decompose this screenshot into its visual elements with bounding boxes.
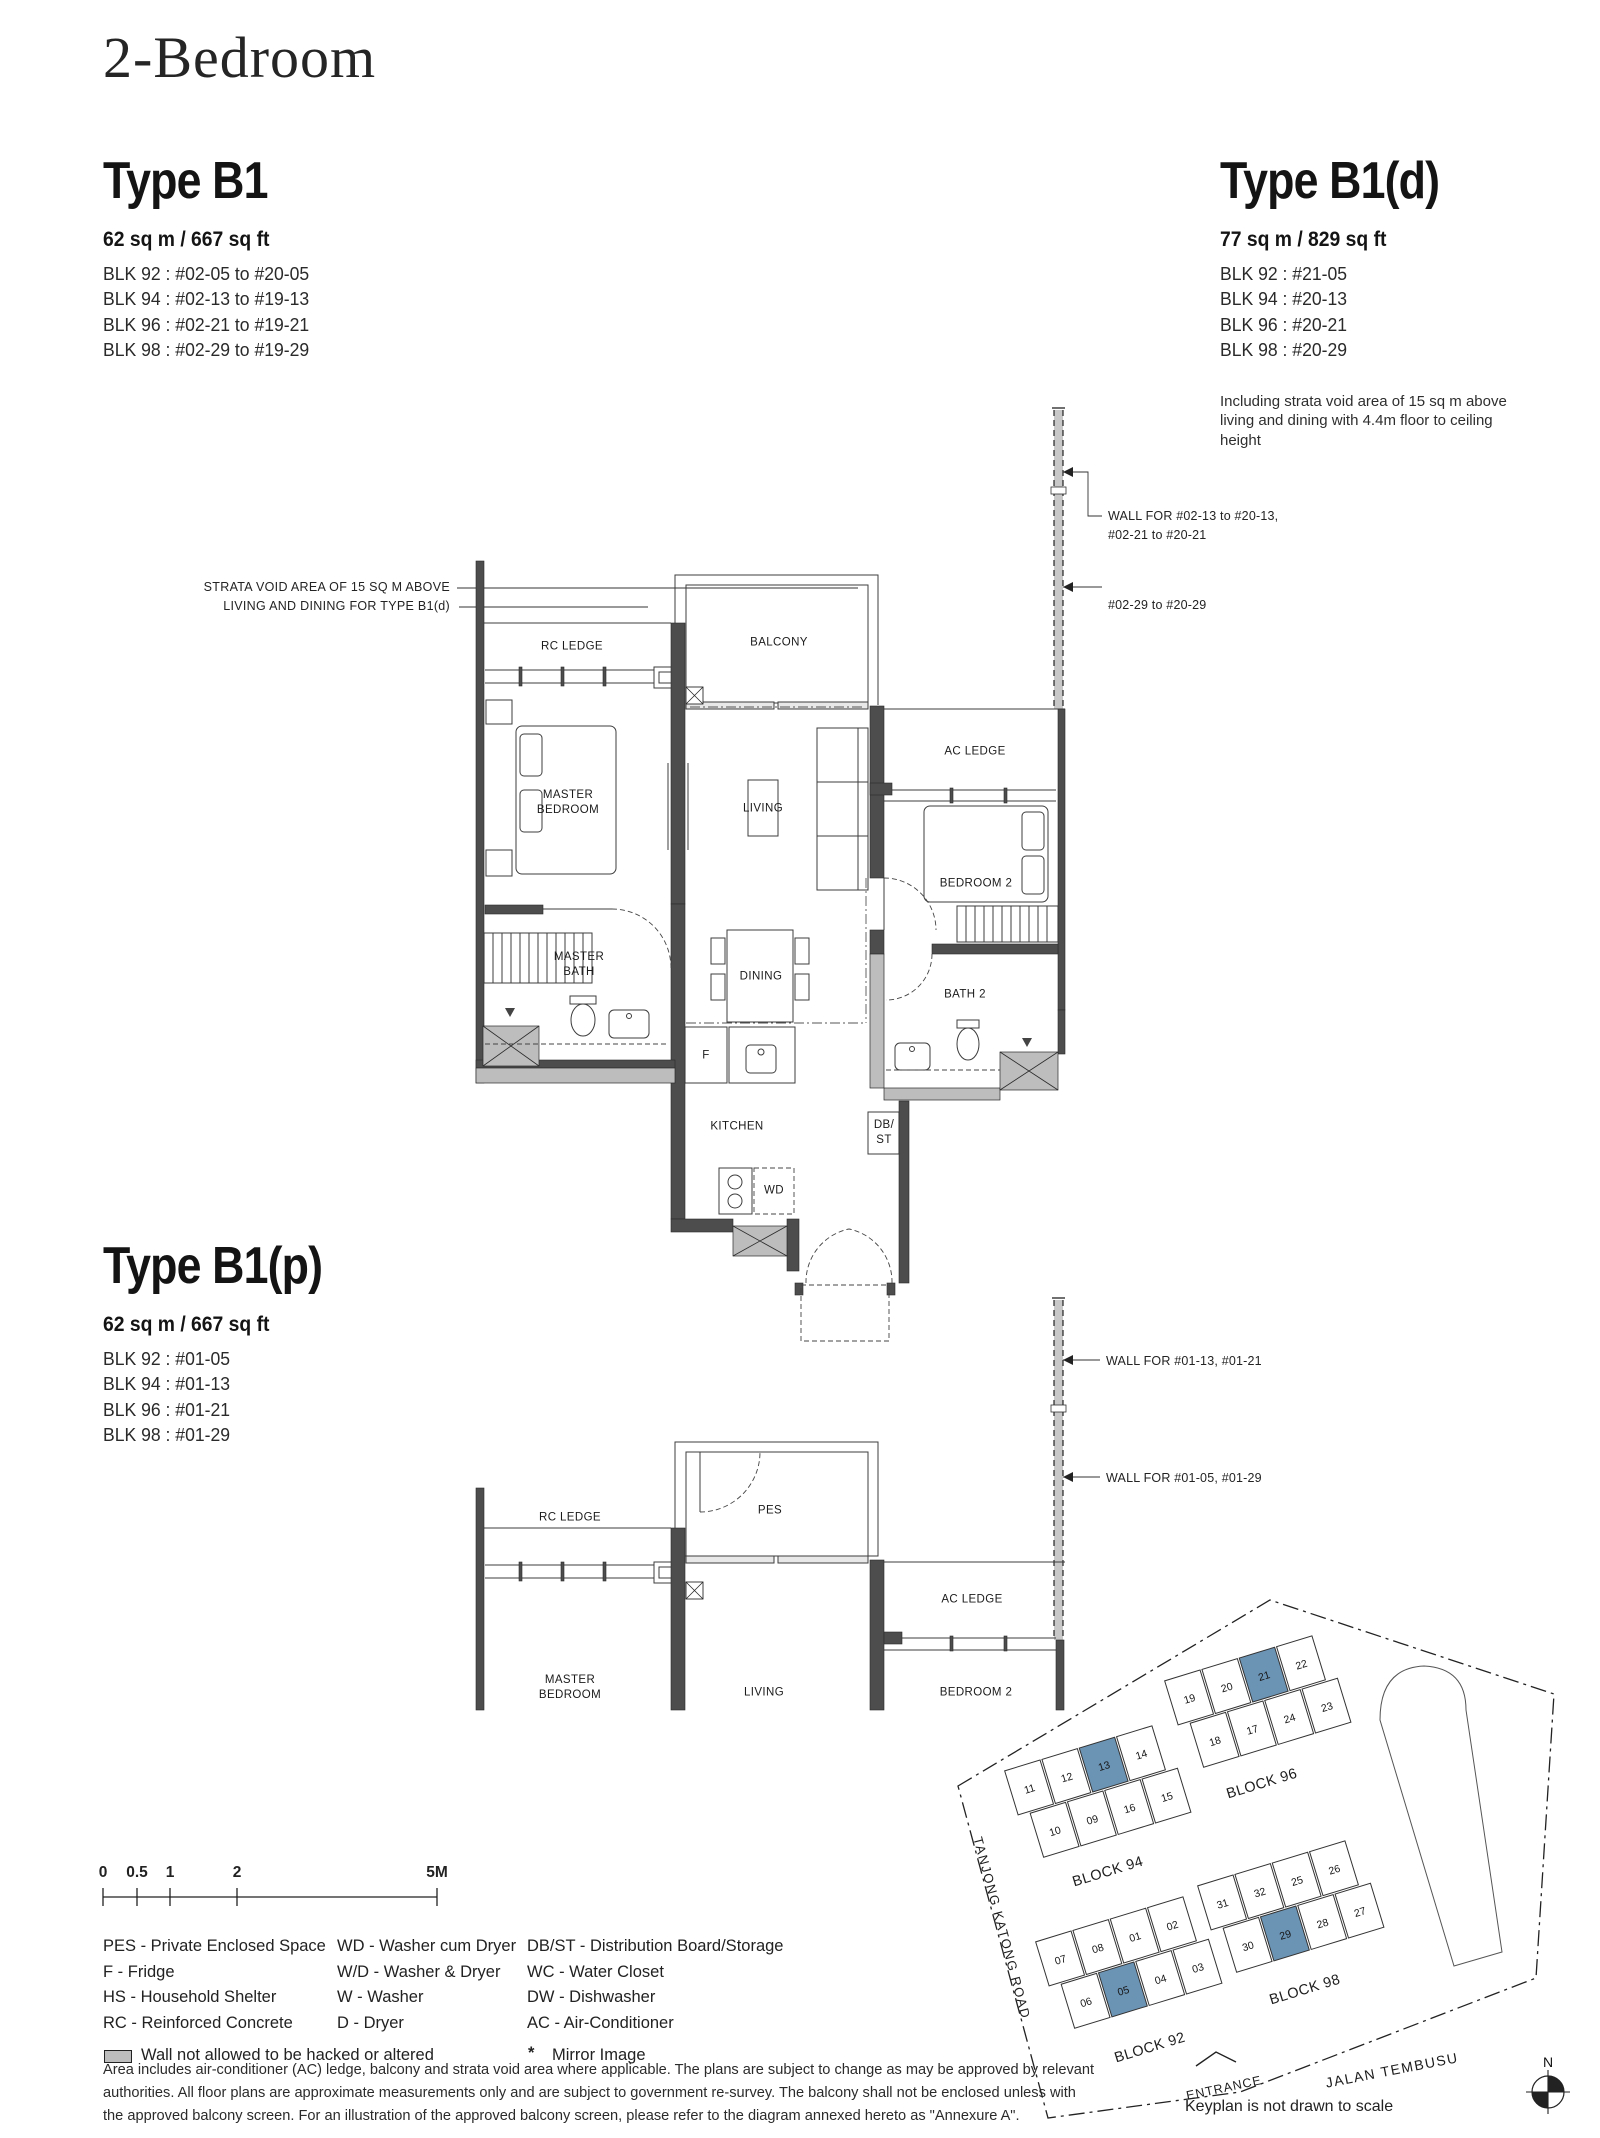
- keyplan-note: Keyplan is not drawn to scale: [1185, 2098, 1393, 2116]
- room-label-balcony: BALCONY: [750, 636, 808, 651]
- floor-plan-upper-drawing: [440, 395, 1120, 1355]
- type-b1p-blocks: BLK 92 : #01-05 BLK 94 : #01-13 BLK 96 :…: [103, 1346, 345, 1448]
- compass-icon: [1526, 2070, 1570, 2114]
- room-label-master-bedroom: MASTER BEDROOM: [537, 788, 599, 818]
- room-label-rc-ledge: RC LEDGE: [541, 640, 603, 655]
- legend-column-1: PES - Private Enclosed Space F - Fridge …: [103, 1934, 326, 2036]
- type-b1d-area: 77 sq m / 829 sq ft: [1220, 228, 1492, 252]
- strata-void-note: STRATA VOID AREA OF 15 SQ M ABOVE LIVING…: [150, 578, 450, 616]
- blk-line: BLK 96 : #20-21: [1220, 312, 1501, 337]
- entrance-caret-icon: [1196, 2052, 1236, 2066]
- disclaimer-line: authorities. All floor plans are approxi…: [103, 2083, 1076, 2104]
- room-label-bedroom-2: BEDROOM 2: [940, 877, 1013, 892]
- leader-lines: [457, 472, 1102, 607]
- legend-item: D - Dryer: [337, 2011, 516, 2037]
- floorplan-page: 2-Bedroom Type B1 62 sq m / 667 sq ft BL…: [0, 0, 1600, 2138]
- compass-north-label: N: [1543, 2054, 1553, 2070]
- legend-column-2: WD - Washer cum Dryer W/D - Washer & Dry…: [337, 1934, 516, 2036]
- room-label-kitchen: KITCHEN: [710, 1120, 763, 1135]
- wall-note-upper-1: WALL FOR #02-13 to #20-13, #02-21 to #20…: [1108, 507, 1278, 546]
- room-label-db-st: DB/ ST: [874, 1118, 894, 1148]
- wall-note-lower-1: WALL FOR #01-13, #01-21: [1106, 1352, 1262, 1371]
- door-arcs: [700, 1452, 760, 1512]
- room-label-ac-ledge: AC LEDGE: [944, 745, 1005, 760]
- legend-item: W - Washer: [337, 1985, 516, 2011]
- keyplan-building-outline: [1380, 1666, 1502, 1966]
- leader-lines: [1063, 1360, 1100, 1477]
- scale-label-1: 1: [166, 1864, 175, 1882]
- blk-line: BLK 92 : #21-05: [1220, 261, 1501, 286]
- keyplan-cluster: 0708010206050403: [1036, 1893, 1222, 2031]
- scale-label-5m: 5M: [426, 1864, 448, 1882]
- scale-label-2: 2: [233, 1864, 242, 1882]
- legend-item: PES - Private Enclosed Space: [103, 1934, 326, 1960]
- page-title: 2-Bedroom: [103, 24, 376, 91]
- spec-type-b1: Type B1 62 sq m / 667 sq ft BLK 92 : #02…: [103, 156, 320, 363]
- keyplan-drawing: 1112131410091615192021221817242331322526…: [940, 1580, 1600, 2138]
- blk-line: BLK 98 : #01-29: [103, 1422, 345, 1447]
- room-label-pes: PES: [758, 1504, 782, 1519]
- type-b1p-area: 62 sq m / 667 sq ft: [103, 1313, 337, 1337]
- legend-item: DB/ST - Distribution Board/Storage: [527, 1934, 783, 1960]
- legend-item: AC - Air-Conditioner: [527, 2011, 783, 2037]
- spec-type-b1d: Type B1(d) 77 sq m / 829 sq ft BLK 92 : …: [1220, 156, 1516, 450]
- blk-line: BLK 98 : #20-29: [1220, 337, 1501, 362]
- room-label-wd: WD: [764, 1184, 784, 1199]
- room-label-living: LIVING: [743, 802, 783, 817]
- arrow-icon: [1063, 467, 1073, 477]
- spec-type-b1p: Type B1(p) 62 sq m / 667 sq ft BLK 92 : …: [103, 1241, 358, 1448]
- type-b1d-title: Type B1(d): [1220, 156, 1475, 206]
- legend-item: HS - Household Shelter: [103, 1985, 326, 2011]
- wall-note-lower-2: WALL FOR #01-05, #01-29: [1106, 1469, 1262, 1488]
- legend-item: WD - Washer cum Dryer: [337, 1934, 516, 1960]
- room-label-bath-2: BATH 2: [944, 988, 986, 1003]
- type-b1d-note: Including strata void area of 15 sq m ab…: [1220, 392, 1516, 451]
- thin-outlines: [484, 575, 1065, 1214]
- shower-mark-icon: [1022, 1038, 1032, 1047]
- room-label-master-bath: MASTER BATH: [554, 950, 604, 980]
- room-label-living: LIVING: [744, 1686, 784, 1701]
- scale-label-05: 0.5: [126, 1864, 148, 1882]
- keyplan-clusters: 1112131410091615192021221817242331322526…: [1005, 1632, 1384, 2031]
- door-arcs: [485, 878, 1000, 1341]
- type-b1-title: Type B1: [103, 156, 290, 206]
- arrow-icon: [1063, 1355, 1073, 1365]
- keyplan-cluster: 1112131410091615: [1005, 1722, 1191, 1860]
- room-label-fridge: F: [702, 1049, 709, 1064]
- legend-item: RC - Reinforced Concrete: [103, 2011, 326, 2037]
- keyplan-cluster: 1920212218172423: [1165, 1632, 1351, 1770]
- room-label-dining: DINING: [740, 970, 783, 985]
- dashed-wall-upper: [1051, 408, 1066, 709]
- blk-line: BLK 94 : #02-13 to #19-13: [103, 286, 309, 311]
- blk-line: BLK 92 : #01-05: [103, 1346, 345, 1371]
- blk-line: BLK 98 : #02-29 to #19-29: [103, 337, 309, 362]
- room-label-rc-ledge: RC LEDGE: [539, 1511, 601, 1526]
- shower-mark-icon: [505, 1008, 515, 1017]
- legend-item: DW - Dishwasher: [527, 1985, 783, 2011]
- type-b1-area: 62 sq m / 667 sq ft: [103, 228, 303, 252]
- blk-line: BLK 96 : #02-21 to #19-21: [103, 312, 309, 337]
- wall-note-upper-2: #02-29 to #20-29: [1108, 596, 1206, 615]
- blk-line: BLK 92 : #02-05 to #20-05: [103, 261, 309, 286]
- legend-item: WC - Water Closet: [527, 1960, 783, 1986]
- blk-line: BLK 94 : #20-13: [1220, 286, 1501, 311]
- legend-column-3: DB/ST - Distribution Board/Storage WC - …: [527, 1934, 783, 2036]
- scale-label-0: 0: [99, 1864, 108, 1882]
- type-b1-blocks: BLK 92 : #02-05 to #20-05 BLK 94 : #02-1…: [103, 261, 309, 363]
- scale-bar: [95, 1862, 455, 1910]
- disclaimer-line: the approved balcony screen. For an illu…: [103, 2106, 1020, 2127]
- blk-line: BLK 94 : #01-13: [103, 1371, 345, 1396]
- keyplan-cluster: 3132252630292827: [1198, 1837, 1384, 1975]
- type-b1d-blocks: BLK 92 : #21-05 BLK 94 : #20-13 BLK 96 :…: [1220, 261, 1501, 363]
- arrow-icon: [1063, 582, 1073, 592]
- type-b1p-title: Type B1(p): [103, 1241, 322, 1291]
- blk-line: BLK 96 : #01-21: [103, 1397, 345, 1422]
- legend-item: W/D - Washer & Dryer: [337, 1960, 516, 1986]
- arrow-icon: [1063, 1472, 1073, 1482]
- room-label-master-bedroom: MASTER BEDROOM: [539, 1673, 601, 1703]
- legend-item: F - Fridge: [103, 1960, 326, 1986]
